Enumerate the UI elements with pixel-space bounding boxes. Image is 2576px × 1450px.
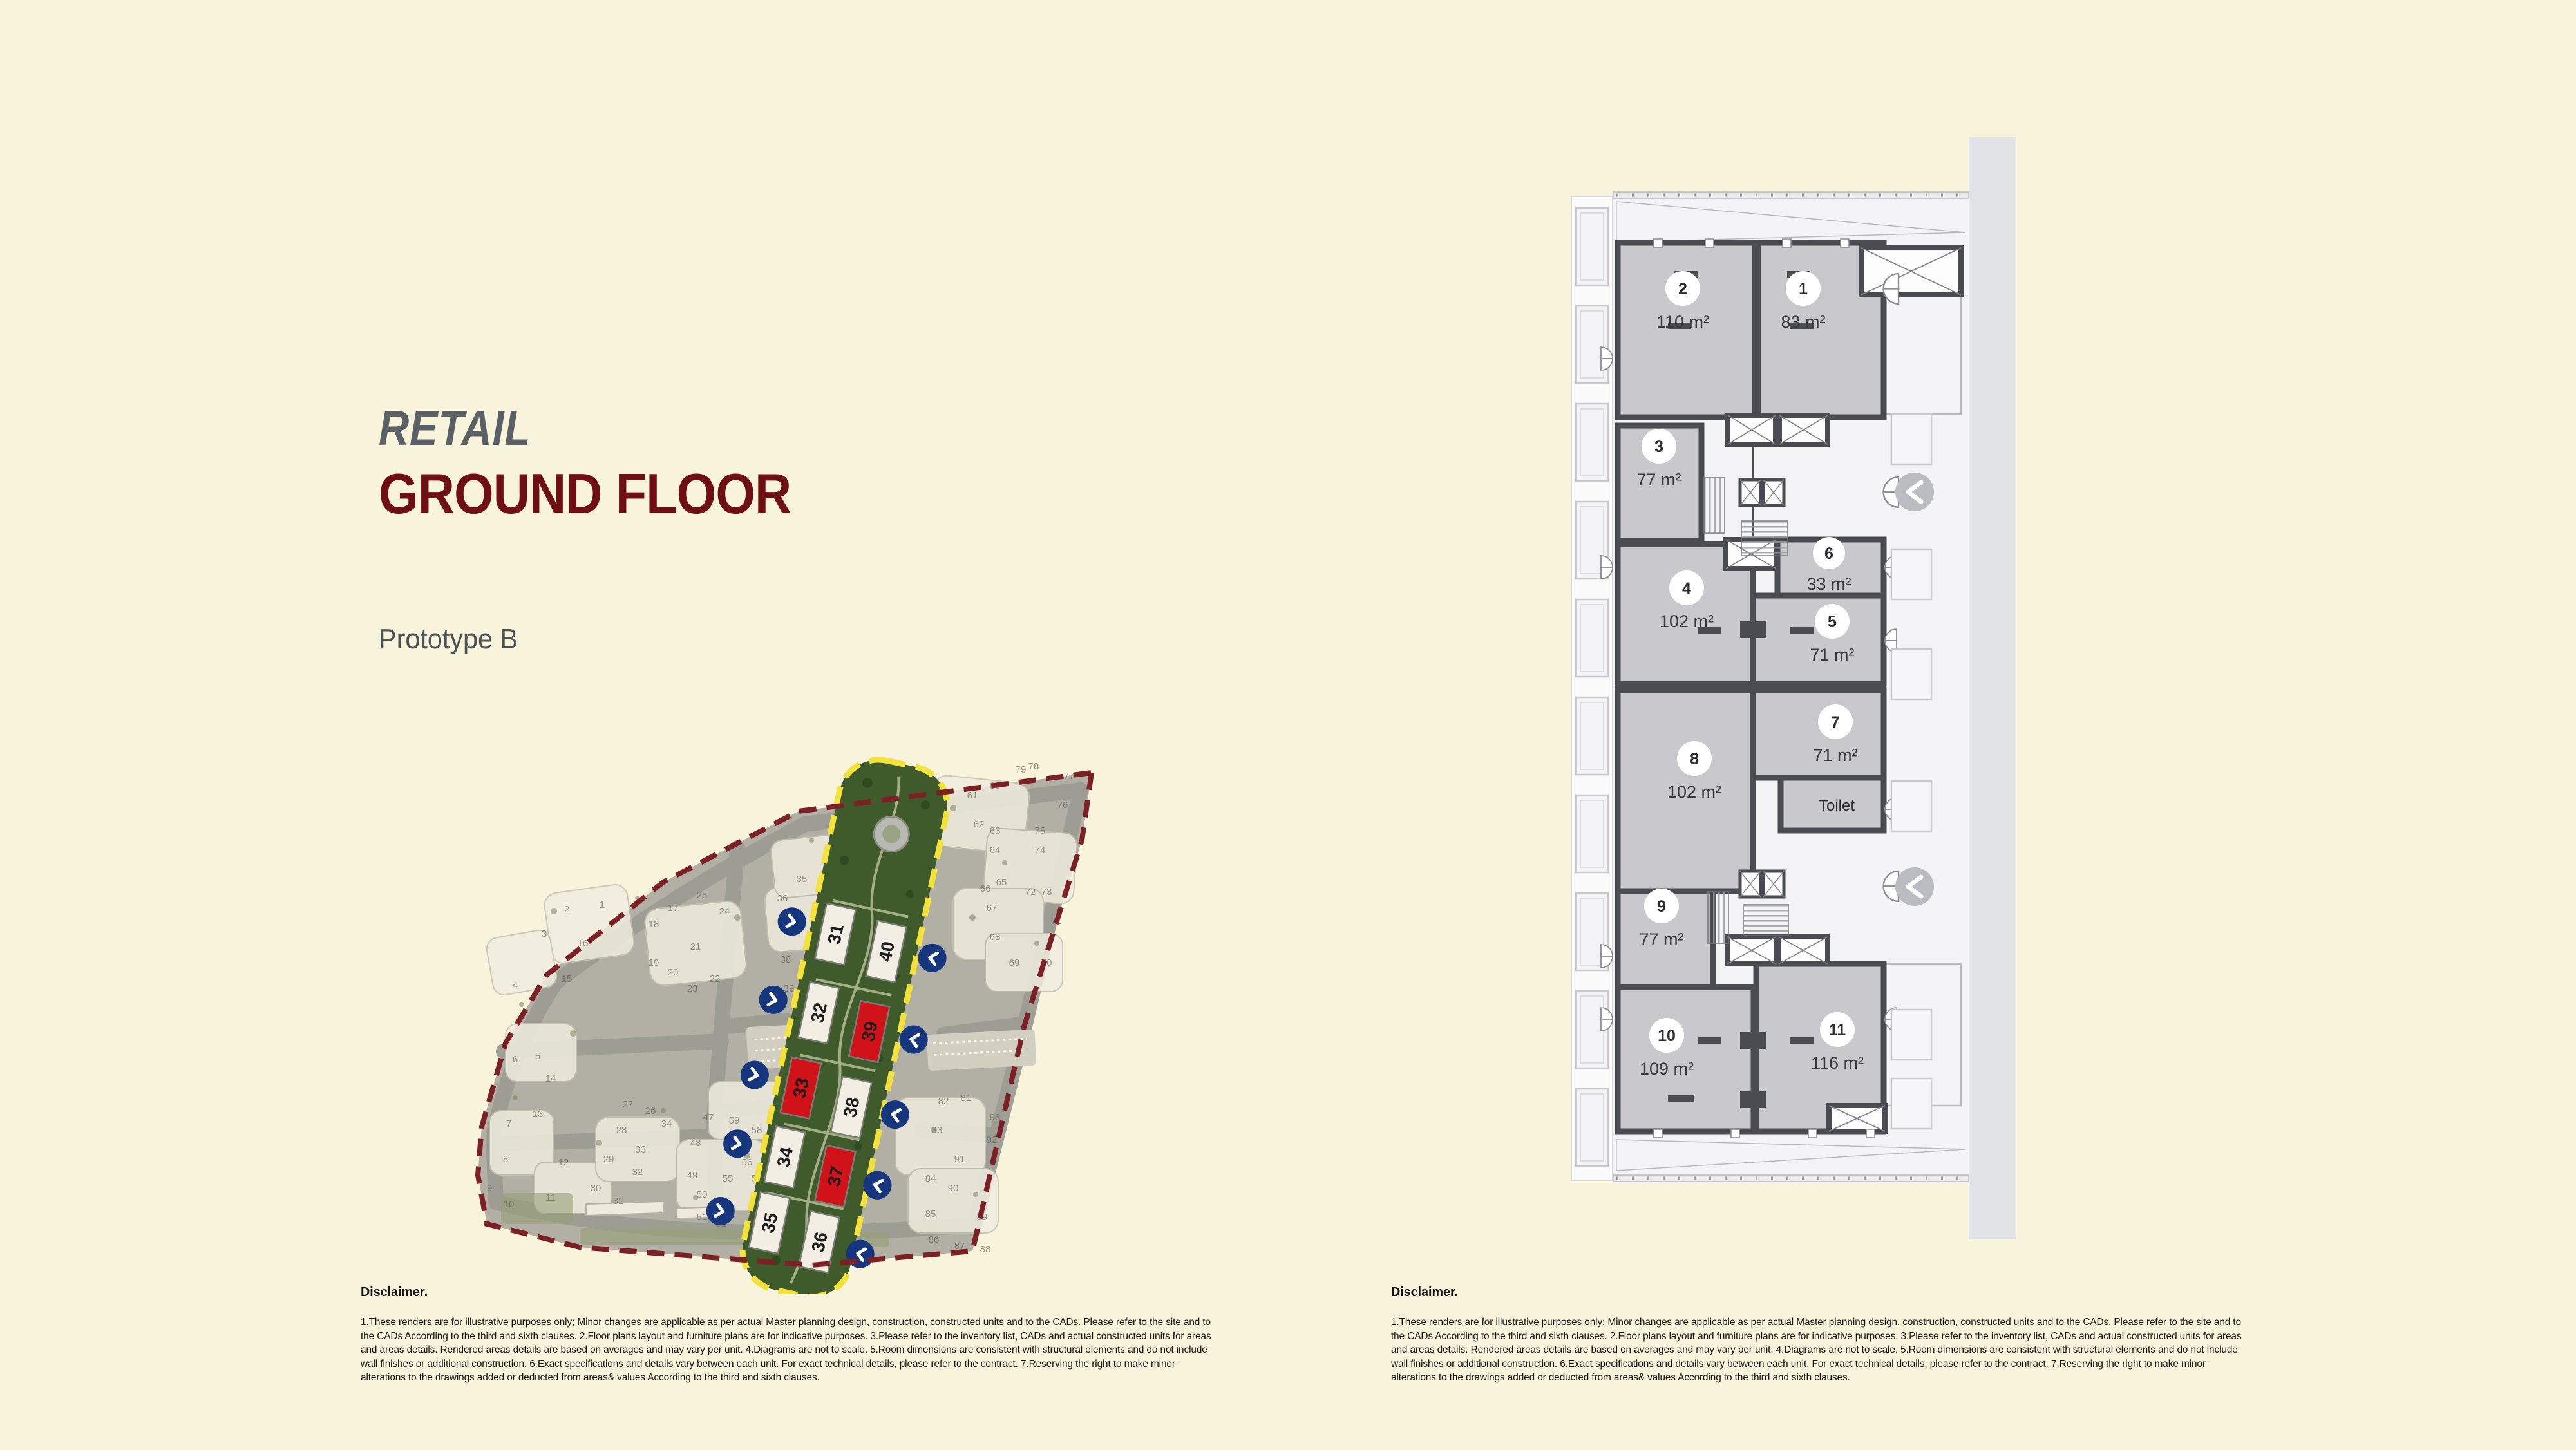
svg-text:77 m²: 77 m²	[1636, 470, 1681, 489]
svg-text:116 m²: 116 m²	[1811, 1053, 1864, 1073]
site-background-number: 48	[690, 1138, 701, 1149]
site-background-number: 51	[697, 1212, 708, 1223]
site-background-number: 36	[777, 893, 788, 904]
disclaimer-heading: Disclaimer.	[361, 1285, 1218, 1300]
page-subtitle-prototype: Prototype B	[379, 623, 518, 655]
site-background-number: 88	[980, 1244, 991, 1255]
svg-text:110 m²: 110 m²	[1656, 312, 1709, 332]
site-background-number: 18	[649, 919, 659, 930]
site-background-number: 67	[987, 903, 998, 914]
site-background-number: 38	[781, 954, 791, 965]
strip-label-39: 39	[858, 1020, 882, 1044]
svg-text:2: 2	[1678, 280, 1687, 298]
site-background-number: 1	[600, 899, 605, 910]
svg-text:5: 5	[1828, 613, 1837, 631]
site-background-number: 12	[558, 1157, 569, 1168]
site-background-number: 91	[954, 1154, 965, 1165]
svg-text:83 m²: 83 m²	[1781, 312, 1825, 332]
site-background-number: 72	[1025, 887, 1036, 898]
site-background-number: 74	[1035, 845, 1046, 856]
site-background-number: 55	[723, 1173, 734, 1184]
svg-text:1: 1	[1799, 280, 1808, 298]
svg-text:4: 4	[1682, 579, 1691, 598]
strip-label-35: 35	[758, 1211, 782, 1235]
site-background-number: 63	[990, 825, 1001, 836]
room-unit-5	[1753, 596, 1884, 684]
separation-wall	[1615, 682, 1886, 692]
svg-text:102 m²: 102 m²	[1667, 782, 1721, 802]
svg-text:6: 6	[1824, 545, 1833, 563]
strip-label-36: 36	[808, 1230, 831, 1254]
svg-text:8: 8	[1690, 750, 1699, 768]
site-background-number: 59	[729, 1115, 740, 1126]
site-background-number: 26	[645, 1106, 656, 1116]
site-background-number: 27	[623, 1099, 634, 1110]
site-background-number: 47	[703, 1112, 714, 1123]
toilet-label: Toilet	[1819, 797, 1855, 814]
site-background-number: 7	[506, 1118, 511, 1129]
site-background-number: 84	[925, 1173, 936, 1184]
site-background-number: 50	[697, 1189, 708, 1200]
site-background-number: 79	[1016, 764, 1027, 775]
site-background-number: 76	[1057, 800, 1068, 811]
site-background-number: 15	[562, 974, 573, 984]
disclaimer-heading: Disclaimer.	[1391, 1285, 2249, 1300]
site-background-number: 9	[487, 1183, 492, 1194]
site-background-number: 77	[1064, 771, 1075, 782]
site-background-number: 49	[687, 1170, 698, 1181]
site-background-number: 92	[987, 1135, 998, 1145]
svg-text:109 m²: 109 m²	[1640, 1059, 1694, 1078]
site-background-number: 85	[925, 1209, 936, 1219]
site-background-number: 24	[719, 906, 730, 917]
disclaimer-left: Disclaimer. 1.These renders are for illu…	[361, 1285, 1218, 1385]
site-background-number: 2	[564, 904, 569, 915]
site-background-number: 64	[990, 845, 1001, 856]
site-background-number: 81	[961, 1093, 972, 1104]
site-background-number: 21	[690, 941, 701, 952]
site-background-number: 32	[632, 1167, 643, 1178]
svg-text:10: 10	[1658, 1027, 1676, 1045]
site-background-number: 25	[697, 890, 708, 901]
site-background-number: 19	[649, 957, 659, 968]
site-background-number: 62	[974, 819, 985, 830]
site-background-number: 68	[990, 932, 1001, 943]
road-band	[1969, 137, 2016, 1239]
site-background-number: 5	[535, 1051, 540, 1062]
site-background-number: 6	[513, 1054, 518, 1065]
svg-text:9: 9	[1657, 898, 1666, 916]
site-background-number: 35	[797, 874, 808, 885]
site-background-number: 29	[603, 1154, 614, 1165]
site-background-number: 31	[613, 1196, 624, 1207]
site-background-number: 17	[668, 903, 679, 914]
svg-text:11: 11	[1829, 1021, 1846, 1039]
site-background-number: 90	[948, 1183, 959, 1194]
site-background-number: 8	[503, 1154, 508, 1165]
site-background-number: 4	[513, 980, 518, 991]
strip-label-33: 33	[789, 1076, 813, 1100]
site-background-number: 78	[1028, 761, 1039, 772]
page-title-floor: GROUND FLOOR	[379, 461, 791, 527]
site-background-number: 23	[687, 983, 698, 994]
site-background-number: 65	[996, 877, 1007, 888]
site-background-number: 34	[661, 1118, 672, 1129]
floor-plan: 1 83 m² 2 110 m² 3 77 m² 4 102 m² 5	[1571, 137, 2087, 1246]
strip-label-38: 38	[840, 1095, 864, 1119]
site-background-number: 58	[752, 1125, 762, 1136]
site-background-number: 28	[616, 1125, 627, 1136]
site-map: 1231641518172524192021232235364645443743…	[361, 750, 1133, 1294]
svg-text:71 m²: 71 m²	[1810, 645, 1854, 664]
site-background-number: 22	[710, 974, 721, 984]
site-background-number: 66	[980, 883, 991, 894]
site-background-number: 93	[990, 1112, 1001, 1123]
site-background-number: 30	[591, 1183, 601, 1194]
svg-text:77 m²: 77 m²	[1639, 930, 1683, 949]
site-background-number: 10	[504, 1199, 515, 1210]
strip-label-40: 40	[875, 939, 898, 963]
site-background-number: 56	[742, 1157, 753, 1168]
brochure-page: RETAIL GROUND FLOOR Prototype B	[0, 0, 2576, 1450]
disclaimer-right: Disclaimer. 1.These renders are for illu…	[1391, 1285, 2249, 1385]
strip-label-31: 31	[824, 922, 848, 946]
strip-label-32: 32	[807, 1001, 831, 1025]
site-background-number: 82	[938, 1096, 949, 1107]
left-terrace-column	[1571, 196, 1613, 1180]
site-background-number: 3	[542, 928, 547, 939]
site-background-number: 14	[545, 1073, 556, 1084]
page-title-category: RETAIL	[379, 400, 531, 457]
svg-text:3: 3	[1654, 438, 1663, 456]
strip-label-37: 37	[824, 1165, 848, 1189]
svg-text:33 m²: 33 m²	[1806, 574, 1851, 594]
site-background-number: 61	[967, 790, 978, 801]
site-background-number: 75	[1035, 825, 1046, 836]
disclaimer-body: 1.These renders are for illustrative pur…	[361, 1315, 1218, 1385]
site-background-number: 13	[533, 1109, 544, 1120]
disclaimer-body: 1.These renders are for illustrative pur…	[1391, 1315, 2249, 1385]
svg-text:7: 7	[1831, 713, 1840, 731]
site-background-number: 83	[932, 1125, 943, 1136]
site-background-number: 20	[668, 967, 679, 978]
svg-text:102 m²: 102 m²	[1660, 612, 1714, 631]
site-background-number: 69	[1009, 957, 1020, 968]
site-background-number: 86	[929, 1234, 940, 1245]
svg-text:71 m²: 71 m²	[1813, 746, 1857, 765]
site-background-number: 11	[545, 1192, 556, 1203]
site-background-number: 33	[636, 1144, 647, 1155]
site-background-number: 73	[1041, 887, 1052, 898]
